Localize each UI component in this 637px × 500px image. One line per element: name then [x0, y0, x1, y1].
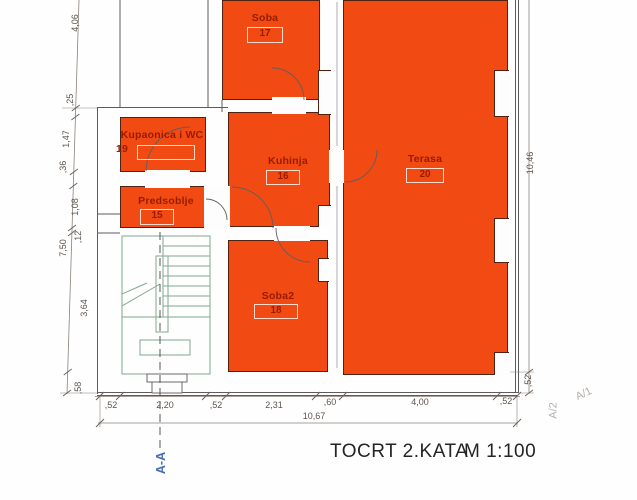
dim-left-4: 1,08 [70, 194, 80, 220]
door-gap-soba17 [272, 97, 306, 114]
number-kuhinja: 16 [266, 170, 300, 185]
dim-bottom-7: ,52 [494, 396, 518, 406]
dim-left-outer-2: 7,50 [58, 233, 68, 263]
dim-left-3: ,36 [58, 154, 68, 180]
floorplan-canvas: Soba 17 Kupaonica i WC 19 Kuhinja 16 Ter… [0, 0, 637, 500]
dim-left-2: 1,47 [61, 126, 71, 152]
axis-label-a2: A/2 [548, 397, 561, 425]
number-kupaonica: 19 [116, 143, 134, 156]
dim-bottom-1: ,52 [98, 400, 124, 410]
dim-left-7: ,58 [73, 375, 83, 401]
label-terasa: Terasa [400, 153, 450, 166]
terasa-notch-3 [494, 352, 509, 375]
soba2-notch [318, 258, 329, 282]
dim-left-1: ,25 [65, 87, 75, 113]
dim-left-outer-1: 4,06 [70, 8, 80, 38]
terasa-notch-2 [494, 218, 509, 263]
label-soba2: Soba2 [248, 290, 308, 303]
door-gap-kupaonica [145, 170, 190, 188]
door-gap-soba2 [274, 226, 310, 241]
door-gap-predsoblje [204, 197, 230, 220]
dim-bottom-6: 4,00 [405, 397, 435, 407]
kuhinja-notch-2 [318, 205, 331, 227]
terasa-notch-1 [494, 70, 509, 117]
number-soba2: 18 [254, 304, 298, 319]
dim-bottom-3: ,52 [204, 400, 228, 410]
dim-bottom-2: 2,20 [150, 400, 180, 410]
dim-bottom-4: 2,31 [259, 400, 289, 410]
section-label: A-A [154, 446, 168, 480]
door-gap-terasa [329, 150, 344, 183]
kuhinja-notch-1 [318, 70, 331, 115]
number-box-kupaonica [137, 145, 195, 160]
staircase [122, 236, 210, 374]
number-predsoblje: 15 [140, 209, 174, 225]
dim-bottom-total: 10,67 [296, 411, 332, 421]
dim-right-height: 10,46 [525, 146, 535, 180]
label-soba17: Soba [235, 12, 295, 25]
dim-bottom-5: ,60 [318, 397, 342, 407]
drawing-title: TOCRT 2.KATA [330, 441, 468, 463]
drawing-scale: M 1:100 [464, 441, 536, 463]
entry-steps [147, 374, 187, 393]
dim-left-6: 3,64 [79, 295, 89, 321]
dim-left-5: ,12 [73, 224, 83, 250]
room-terasa [343, 0, 508, 375]
label-kuhinja: Kuhinja [258, 155, 318, 168]
axis-label-a1: A/1 [569, 383, 600, 407]
number-terasa: 20 [406, 168, 444, 183]
label-kupaonica: Kupaonica i WC [112, 129, 212, 142]
label-predsoblje: Predsoblje [130, 195, 202, 208]
number-soba17: 17 [247, 27, 283, 43]
dim-right-bottom: ,52 [523, 369, 533, 393]
